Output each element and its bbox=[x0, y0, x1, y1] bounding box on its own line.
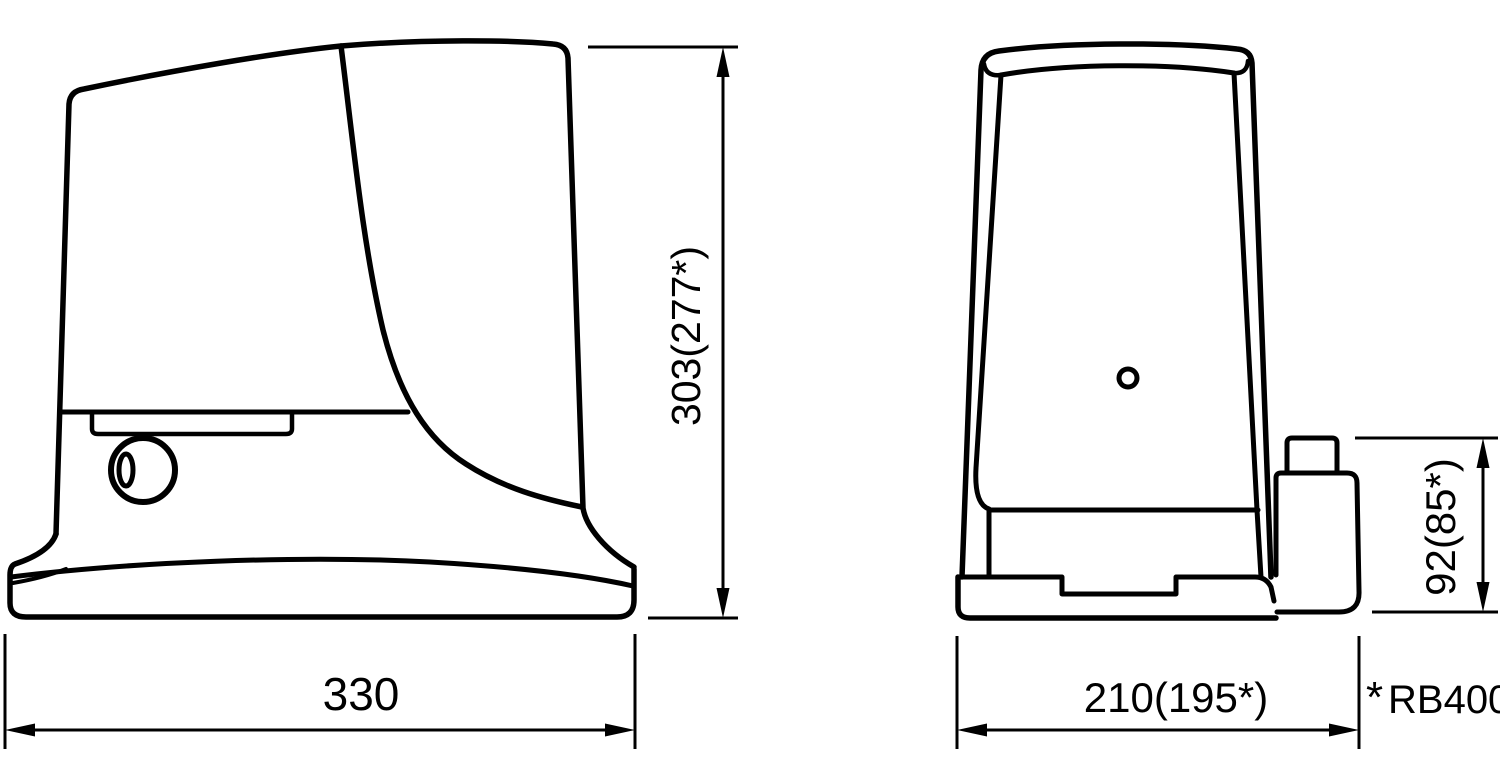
side-base-top-edge bbox=[11, 559, 633, 586]
arrow-side-height-down bbox=[717, 588, 730, 618]
housing-height-dimension-label: 92(85*) bbox=[1417, 458, 1464, 596]
side-base-outline bbox=[10, 534, 634, 617]
dimension-lines bbox=[5, 47, 1498, 749]
arrow-housing-up bbox=[1477, 438, 1490, 468]
release-lock-keyhole bbox=[119, 454, 133, 486]
front-base-outline bbox=[958, 577, 1276, 618]
front-width-dimension-label: 210(195*) bbox=[1084, 674, 1268, 721]
arrow-side-width-right bbox=[605, 724, 635, 737]
side-view bbox=[10, 41, 634, 617]
arrow-front-width-left bbox=[957, 724, 987, 737]
front-lid-corner-curl-right bbox=[1234, 61, 1248, 73]
arrow-side-width-left bbox=[5, 724, 35, 737]
arrow-housing-down bbox=[1477, 582, 1490, 612]
front-lid-inner-arc bbox=[1001, 66, 1234, 75]
arrow-front-width-right bbox=[1329, 724, 1359, 737]
front-housing-top-block bbox=[1287, 438, 1337, 471]
front-body-outline bbox=[962, 44, 1271, 577]
front-view bbox=[958, 44, 1359, 618]
gate-motor-dimension-drawing: 303(277*) 330 210(195*) 92(85*) * RB400 bbox=[0, 0, 1500, 770]
arrow-side-height-up bbox=[717, 47, 730, 77]
front-base-top-edge bbox=[958, 577, 1274, 601]
side-tab-recess bbox=[92, 412, 292, 434]
footnote-asterisk: * bbox=[1366, 673, 1383, 722]
footnote-model-label: RB400 bbox=[1388, 678, 1500, 722]
technical-drawing-page: 303(277*) 330 210(195*) 92(85*) * RB400 bbox=[0, 0, 1500, 770]
front-screw-hole bbox=[1119, 369, 1137, 387]
side-width-dimension-label: 330 bbox=[323, 668, 400, 720]
front-lid-corner-curl-left bbox=[984, 64, 1001, 75]
side-body-outline bbox=[56, 41, 634, 567]
side-cover-seam-line bbox=[341, 46, 582, 507]
front-housing-box bbox=[1276, 473, 1359, 612]
side-height-dimension-label: 303(277*) bbox=[663, 246, 709, 426]
